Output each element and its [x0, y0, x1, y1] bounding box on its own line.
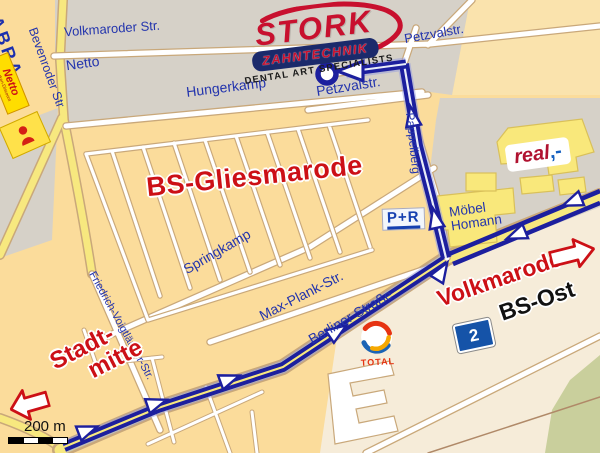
building-small-1	[466, 173, 496, 191]
total-globe-icon	[359, 319, 395, 355]
park-and-ride-text: P+R	[387, 208, 420, 229]
route-map: Volkmaroder Str. Bevenroder Str Netto Hu…	[0, 0, 600, 453]
scale-segment	[38, 438, 53, 443]
building-small-3	[558, 177, 586, 195]
store-logo-icon	[11, 121, 38, 149]
scale-segment	[24, 438, 39, 443]
real-suffix: ,-	[548, 140, 563, 164]
park-and-ride-sign: P+R	[382, 207, 425, 230]
exit-number: 2	[467, 325, 480, 347]
area-northeast	[452, 0, 600, 95]
building-white-e	[328, 361, 398, 444]
building-small-2	[520, 175, 554, 194]
scale-segment	[53, 438, 68, 443]
scale-bar	[8, 437, 68, 444]
total-station-logo: TOTAL	[351, 319, 403, 369]
scale-label: 200 m	[24, 419, 66, 435]
scale-segment	[9, 438, 24, 443]
real-wordmark: real	[513, 141, 551, 169]
